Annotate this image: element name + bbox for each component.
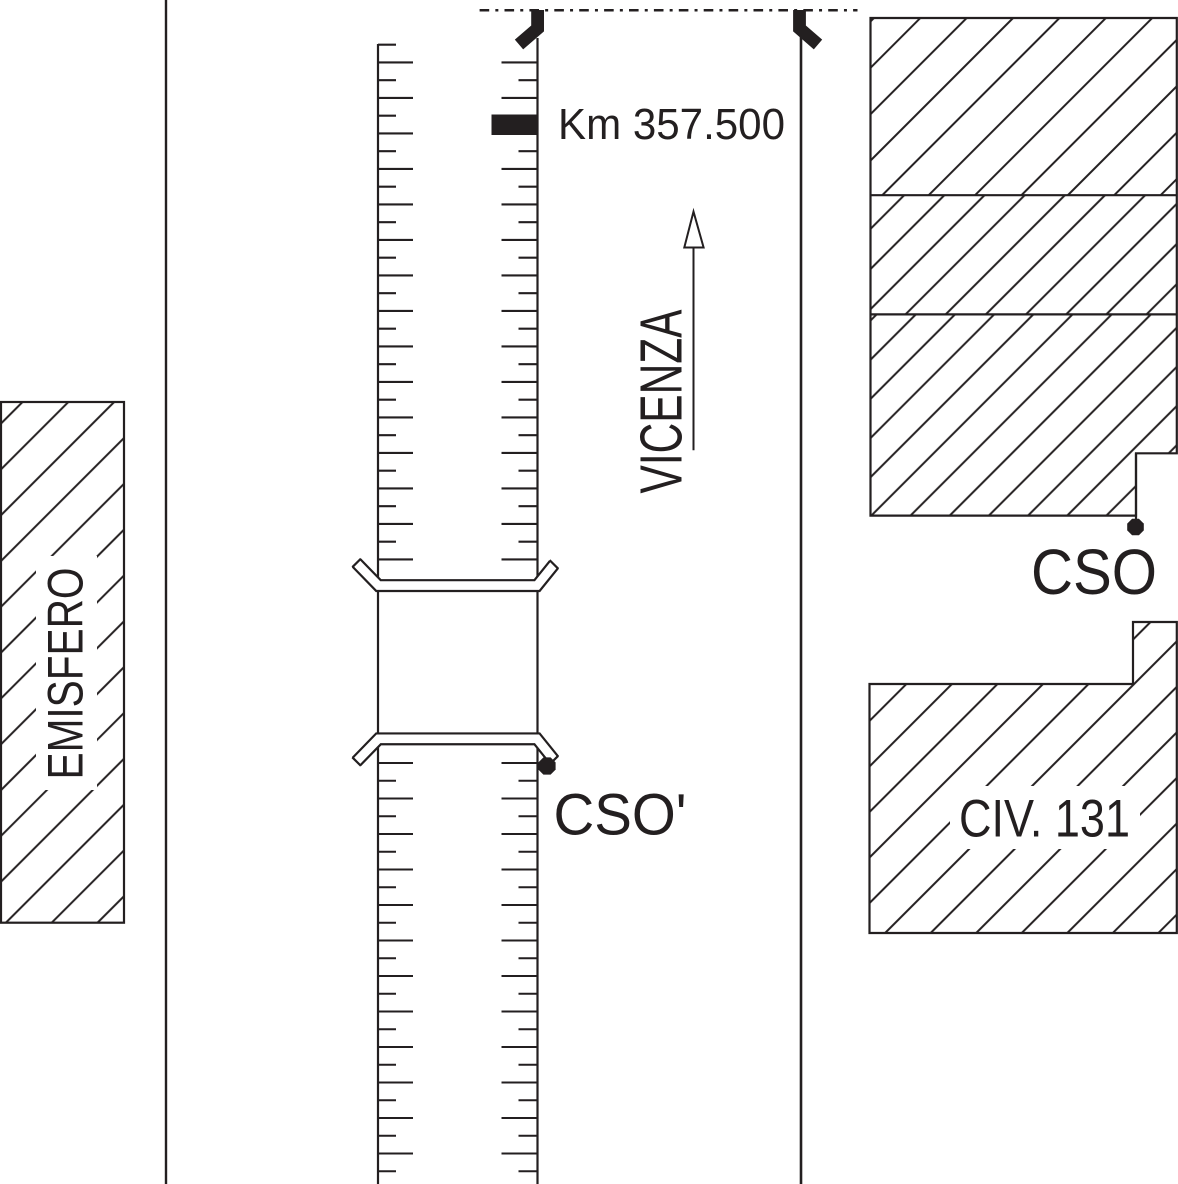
svg-text:CSO': CSO' bbox=[554, 783, 687, 848]
svg-text:CIV. 131: CIV. 131 bbox=[959, 790, 1130, 849]
svg-text:VICENZA: VICENZA bbox=[629, 309, 695, 493]
svg-text:EMISFERO: EMISFERO bbox=[38, 568, 94, 780]
svg-text:CSO: CSO bbox=[1031, 536, 1157, 608]
svg-text:Km 357.500: Km 357.500 bbox=[558, 100, 785, 149]
